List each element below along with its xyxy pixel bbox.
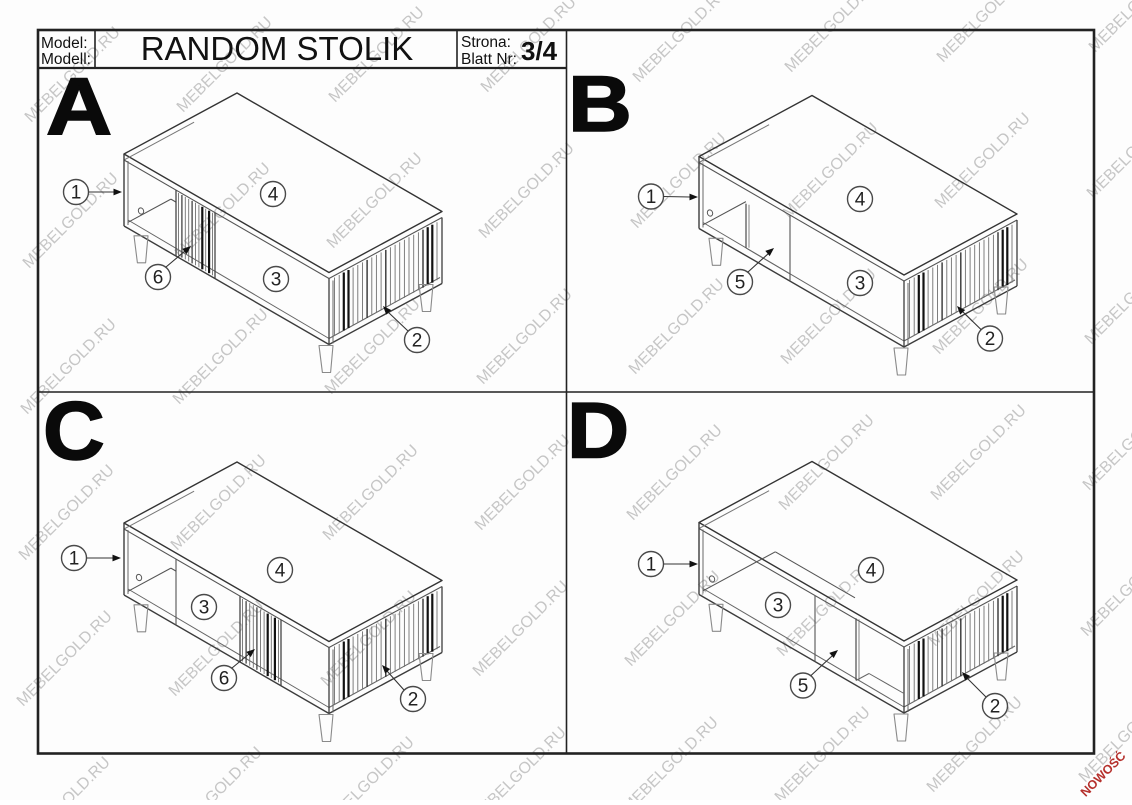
- svg-text:3/4: 3/4: [521, 36, 558, 66]
- svg-text:1: 1: [69, 549, 80, 570]
- svg-text:3: 3: [271, 270, 282, 291]
- svg-text:6: 6: [219, 669, 230, 690]
- svg-text:1: 1: [71, 183, 82, 204]
- svg-text:4: 4: [268, 185, 279, 206]
- svg-text:1: 1: [646, 555, 657, 576]
- svg-text:2: 2: [412, 331, 423, 352]
- svg-text:Model:: Model:: [41, 35, 88, 52]
- svg-text:2: 2: [990, 697, 1001, 718]
- svg-text:3: 3: [855, 274, 866, 295]
- svg-text:A: A: [46, 62, 112, 152]
- svg-text:RANDOM STOLIK: RANDOM STOLIK: [141, 30, 414, 67]
- svg-text:Blatt Nr:: Blatt Nr:: [461, 51, 517, 68]
- svg-text:2: 2: [985, 329, 996, 350]
- svg-text:5: 5: [798, 676, 809, 697]
- svg-text:4: 4: [275, 561, 286, 582]
- svg-text:1: 1: [646, 187, 657, 208]
- svg-text:2: 2: [408, 690, 419, 711]
- svg-text:D: D: [567, 386, 629, 475]
- svg-text:4: 4: [866, 561, 877, 582]
- svg-text:3: 3: [773, 596, 784, 617]
- svg-text:5: 5: [735, 273, 746, 294]
- svg-text:4: 4: [855, 190, 866, 211]
- svg-text:C: C: [43, 384, 105, 477]
- svg-text:3: 3: [199, 598, 210, 619]
- svg-text:Strona:: Strona:: [461, 34, 511, 51]
- svg-text:B: B: [568, 59, 632, 148]
- svg-text:6: 6: [153, 268, 164, 289]
